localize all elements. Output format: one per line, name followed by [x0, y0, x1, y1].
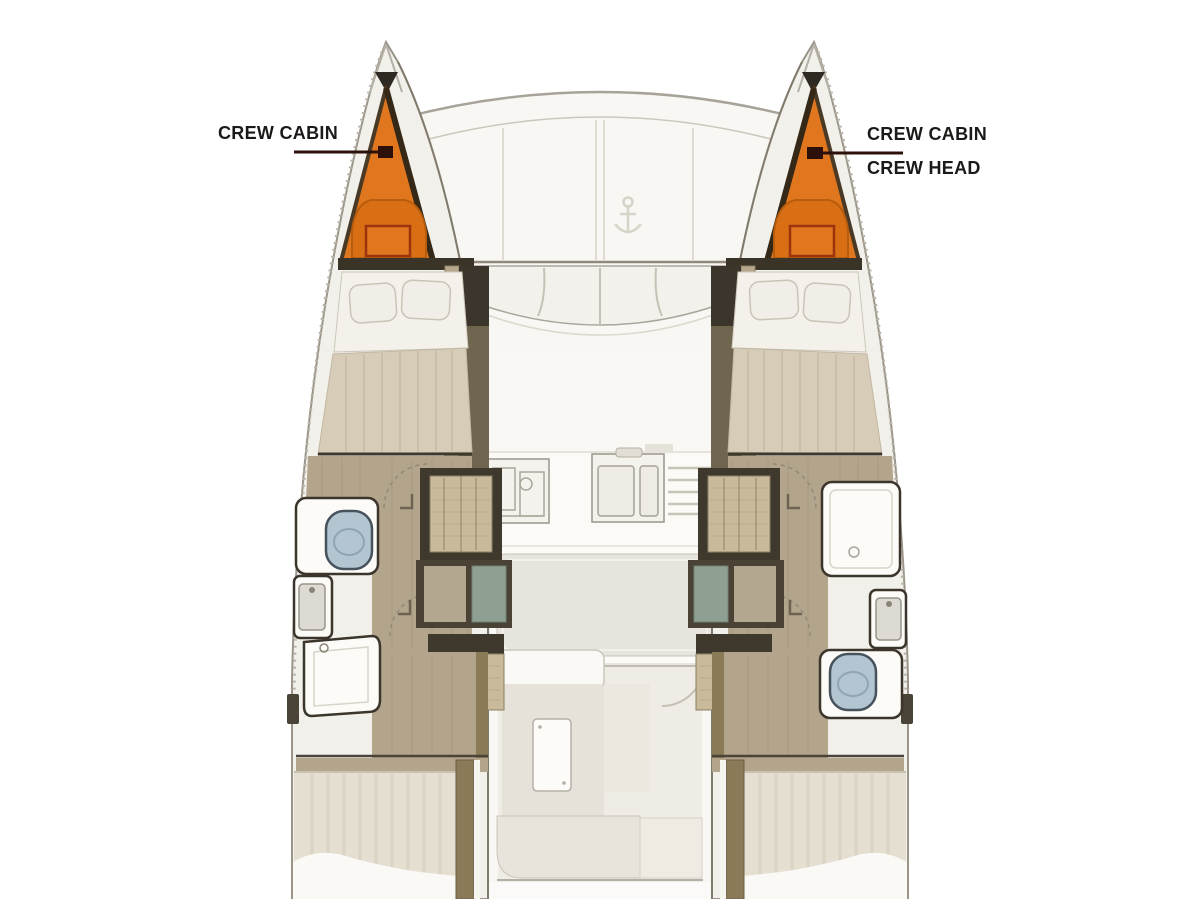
- cabinet-mirror: [472, 566, 506, 622]
- table-fitting: [538, 725, 542, 729]
- faucet: [309, 587, 315, 593]
- label-line: CREW HEAD: [867, 159, 987, 177]
- aft-cabin-bed: [293, 772, 456, 899]
- label-line: CREW CABIN: [218, 123, 338, 143]
- pillow: [401, 280, 451, 320]
- duvet: [318, 348, 472, 455]
- toilet-icon: [326, 511, 372, 569]
- aft-locker: [476, 652, 488, 760]
- cleat: [287, 694, 299, 724]
- aft-step: [640, 818, 702, 878]
- table-fitting: [562, 781, 566, 785]
- aft-bench: [497, 816, 640, 878]
- saloon-floor: [452, 350, 748, 458]
- aft-landing: [372, 652, 488, 762]
- locker-top: [428, 634, 504, 654]
- crew-cabin-step: [366, 226, 410, 256]
- crew-cabin-label-left: CREW CABIN: [200, 124, 338, 142]
- cockpit-table: [533, 719, 571, 791]
- faucet: [616, 448, 642, 457]
- side-deck-gap: [474, 760, 480, 899]
- sink-basin-small: [640, 466, 658, 516]
- cabinet-door: [424, 566, 466, 622]
- callout-dot-icon: [378, 146, 393, 158]
- forward-cabin-bed: [318, 272, 472, 455]
- saloon-table: [497, 554, 713, 656]
- floor-plan-drawing: [0, 0, 1200, 899]
- galley-shelf: [645, 444, 673, 451]
- toilet-icon: [830, 654, 876, 710]
- shower-icon: [822, 482, 900, 576]
- label-line: CREW CABIN: [867, 124, 987, 144]
- hull-side-board: [456, 760, 474, 899]
- transom-platform: [455, 882, 745, 899]
- cockpit-mat-light: [604, 684, 650, 792]
- callout-dot-icon: [807, 147, 823, 159]
- crew-cabin-head-label-right: CREW CABIN CREW HEAD: [867, 125, 987, 177]
- pillow: [349, 282, 398, 323]
- faucet: [886, 601, 892, 607]
- catamaran-floor-plan: CREW CABIN CREW CABIN CREW HEAD: [0, 0, 1200, 899]
- sink-basin: [598, 466, 634, 516]
